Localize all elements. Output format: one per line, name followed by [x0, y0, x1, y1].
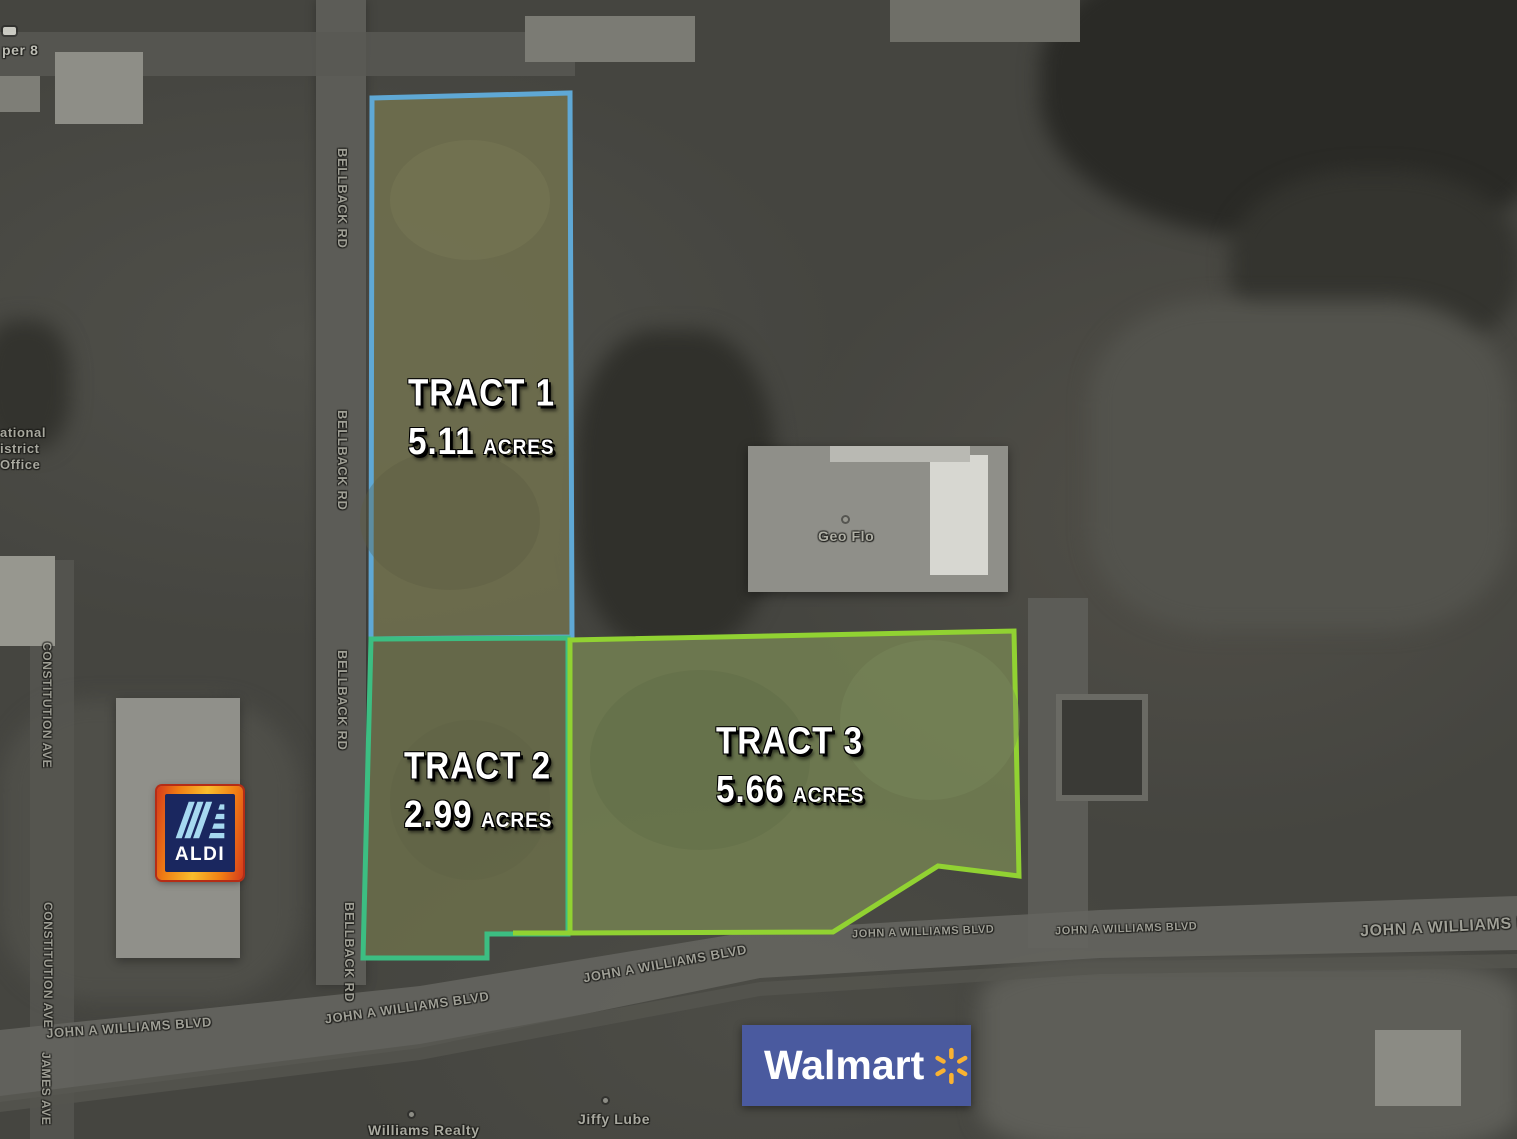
aerial-map: TRACT 1 5.11 ACRES TRACT 2 2.99 ACRES TR…	[0, 0, 1517, 1139]
jiffy-lube-map-dot	[603, 1098, 608, 1103]
walmart-logo-text: Walmart	[764, 1042, 924, 1089]
walmart-spark-icon	[932, 1040, 971, 1092]
tract-3-acres-unit: ACRES	[793, 784, 864, 809]
tract-1-name: TRACT 1	[408, 372, 555, 415]
walmart-logo: Walmart	[742, 1025, 971, 1106]
tract-1-label: TRACT 1 5.11 ACRES	[408, 372, 555, 464]
place-label-office-line2: istrict	[0, 441, 46, 457]
street-label-bellback-4: BELLBACK RD	[342, 902, 357, 1002]
terrain-texture	[840, 640, 1020, 800]
place-label-williams-realty: Williams Realty	[368, 1122, 480, 1138]
street-label-constitution-2: CONSTITUTION AVE	[41, 902, 55, 1028]
aldi-logo: ALDI	[157, 786, 243, 880]
tract-3-name: TRACT 3	[716, 720, 864, 763]
aldi-logo-inner: ALDI	[165, 794, 235, 872]
place-label-office-line3: Office	[0, 457, 46, 473]
street-label-constitution-1: CONSTITUTION AVE	[40, 642, 54, 768]
tract-2-acres-value: 2.99	[404, 794, 473, 837]
tract-2-name: TRACT 2	[404, 745, 552, 788]
williams-realty-map-dot	[409, 1112, 414, 1117]
place-label-super8: per 8	[2, 42, 38, 58]
street-label-james-ave: JAMES AVE	[39, 1052, 53, 1125]
street-label-bellback-1: BELLBACK RD	[335, 148, 350, 248]
tract-3-acres-value: 5.66	[716, 769, 785, 812]
street-label-bellback-2: BELLBACK RD	[335, 410, 350, 510]
tract-2-acres-unit: ACRES	[481, 809, 552, 834]
tract-1-acres-value: 5.11	[408, 421, 475, 464]
super8-map-icon	[3, 27, 16, 35]
aldi-stripes-icon	[172, 800, 228, 840]
place-label-office-line1: ational	[0, 425, 46, 441]
place-label-office: ational istrict Office	[0, 425, 46, 473]
tract-1-acres-unit: ACRES	[483, 436, 554, 461]
geoflo-map-dot	[843, 517, 848, 522]
tract-3-acreage: 5.66 ACRES	[716, 769, 864, 812]
terrain-texture	[360, 450, 540, 590]
tract-2-acreage: 2.99 ACRES	[404, 794, 552, 837]
tract-2-label: TRACT 2 2.99 ACRES	[404, 745, 552, 837]
place-label-jiffy-lube: Jiffy Lube	[578, 1111, 650, 1127]
terrain-texture	[390, 140, 550, 260]
tract-overlay-svg	[0, 0, 1517, 1139]
tract-3-label: TRACT 3 5.66 ACRES	[716, 720, 864, 812]
tract-1-acreage: 5.11 ACRES	[408, 421, 555, 464]
street-label-bellback-3: BELLBACK RD	[335, 650, 350, 750]
aldi-logo-text: ALDI	[175, 844, 225, 866]
place-label-geoflo: Geo Flo	[818, 528, 874, 544]
